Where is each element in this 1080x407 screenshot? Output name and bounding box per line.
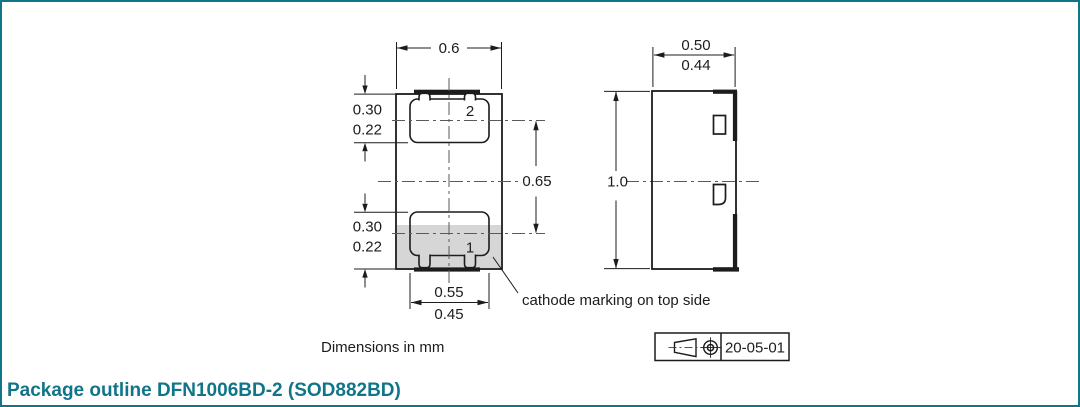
dim-terminal-width-max-label: 0.55 <box>434 284 463 301</box>
arrowhead <box>654 52 665 57</box>
pad-2-tab-right <box>465 93 476 100</box>
arrowhead <box>362 269 367 278</box>
arrowhead <box>411 300 422 305</box>
arrowhead <box>533 121 538 131</box>
arrowhead <box>724 52 735 57</box>
side-view <box>652 90 739 272</box>
arrowhead <box>362 86 367 95</box>
package-outline-drawing: 2 1 0.6 0.30 0.22 0.30 <box>2 2 1080 377</box>
dim-terminal-length-pad2: 0.30 0.22 <box>353 75 408 162</box>
dim-body-length: 1.0 <box>604 91 650 268</box>
dim-terminal-width-min-label: 0.45 <box>434 306 463 323</box>
revision-box: 20-05-01 <box>655 333 789 361</box>
dim-height: 0.50 0.44 <box>653 37 735 87</box>
dim-terminal-length-min-label: 0.22 <box>353 122 382 139</box>
arrowhead <box>397 45 408 50</box>
pad-1-tab-left <box>419 255 430 268</box>
dim-height-max-label: 0.50 <box>681 37 710 54</box>
arrowhead <box>613 91 618 101</box>
dim-terminal-length-min-label: 0.22 <box>353 239 382 256</box>
cathode-callout: cathode marking on top side <box>493 257 710 309</box>
dim-pitch: 0.65 <box>522 121 551 234</box>
dim-pitch-label: 0.65 <box>522 173 551 190</box>
arrowhead <box>478 300 489 305</box>
arrowhead <box>362 143 367 152</box>
dim-body-length-label: 1.0 <box>607 174 628 191</box>
dim-body-width-label: 0.6 <box>439 40 460 57</box>
cathode-note: cathode marking on top side <box>522 292 710 309</box>
pad-1-number: 1 <box>466 240 474 257</box>
dim-terminal-length-max-label: 0.30 <box>353 219 382 236</box>
arrowhead <box>491 45 502 50</box>
leader-line <box>493 257 518 293</box>
side-notch-upper <box>714 116 726 135</box>
units-note: Dimensions in mm <box>321 339 444 356</box>
arrowhead <box>533 224 538 234</box>
revision-date: 20-05-01 <box>725 340 785 357</box>
terminal-metal-right-upper <box>733 91 737 141</box>
side-notch-lower <box>714 185 726 205</box>
terminal-metal-bottom <box>713 267 739 271</box>
dim-terminal-length-max-label: 0.30 <box>353 102 382 119</box>
package-outline-figure: 2 1 0.6 0.30 0.22 0.30 <box>0 0 1080 407</box>
terminal-metal-right-lower <box>733 214 737 269</box>
arrowhead <box>362 204 367 213</box>
pad-2-tab-left <box>419 93 430 100</box>
pad-2-number: 2 <box>466 103 474 120</box>
arrowhead <box>613 259 618 269</box>
dim-height-min-label: 0.44 <box>681 57 710 74</box>
figure-title: Package outline DFN1006BD-2 (SOD882BD) <box>7 380 401 402</box>
